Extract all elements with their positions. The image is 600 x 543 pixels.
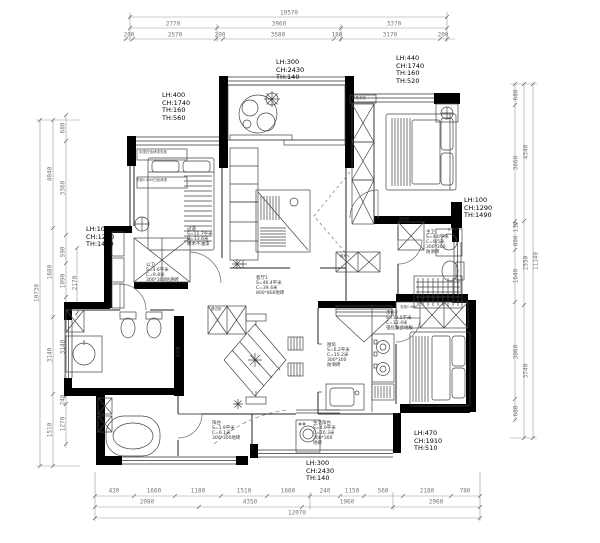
dim-left: 4040 [46, 167, 53, 181]
door-arc [178, 414, 202, 438]
cab-washer: 洗衣机 [399, 218, 410, 222]
annotation-bottom-center: LH:300 CH:2430 TH:140 [306, 460, 334, 483]
walls [64, 76, 476, 465]
dim-bottom: 240 [320, 487, 331, 494]
cab-bookcase: 书柜C:600白色烤漆 [136, 179, 167, 183]
dim-right: 4340 [522, 145, 529, 159]
toilet [147, 318, 161, 338]
dim-left: 1510 [46, 423, 53, 437]
dim-bottom-total: 12070 [288, 509, 306, 516]
guest-bathroom [66, 284, 162, 372]
bed-stripes [413, 336, 428, 402]
dim-left: 1090 [59, 274, 66, 288]
chair [288, 337, 303, 350]
annotation-left: LH:100 CH:1290 TH:1490 [86, 226, 114, 249]
dim-left: 590 [59, 247, 66, 258]
dim-top: 3170 [383, 31, 397, 38]
laundry-room [98, 398, 202, 456]
bed-stripes [392, 118, 410, 186]
floor-plan-canvas: 1057027703960337020025702003580180317020… [0, 0, 600, 543]
dim-top: 200 [438, 31, 449, 38]
annotation-top-left: LH:400 CH:1740 TH:160 TH:560 [162, 92, 190, 123]
dim-top: 200 [124, 31, 135, 38]
dim-left: 3140 [46, 348, 53, 362]
dim-bottom: 1510 [237, 487, 251, 494]
dim-bottom: 1960 [340, 498, 354, 505]
dim-bottom: 4350 [243, 498, 257, 505]
dim-right-total: 11140 [532, 252, 539, 270]
dim-top: 2570 [168, 31, 182, 38]
dim-left: 240 [59, 395, 66, 406]
annotation-right: LH:100 CH:1290 TH:1490 [464, 197, 492, 220]
room-balcony-small: 阳台 S=1.9平米 C=6.1米 300*300地砖 [212, 421, 240, 441]
master-bedroom [350, 95, 458, 224]
dim-right: 110 [512, 222, 519, 233]
dim-right: 3660 [512, 156, 519, 170]
dim-left: 3360 [59, 181, 66, 195]
annotation-top-center: LH:300 CH:2430 TH:140 [276, 59, 304, 82]
dim-bottom: 1660 [147, 487, 161, 494]
study-room [230, 135, 350, 260]
dim-left: 2170 [71, 276, 78, 290]
dim-top: 3960 [272, 20, 286, 27]
dim-bottom: 1660 [281, 487, 295, 494]
bathtub [106, 416, 160, 456]
dim-top: 180 [332, 31, 343, 38]
room-balcony: 生活阳台 S=4.9平米 C=10.3米 300*300 地砖 [313, 421, 336, 446]
room-kitchen: 厨房 S=6.2平米 C=10.2米 300*300 防滑砖 [327, 343, 350, 368]
sliding-door-swing [314, 172, 350, 258]
annotation-bottom-right: LH:470 CH:1910 TH:510 [414, 430, 442, 453]
furniture [66, 85, 470, 456]
dim-bottom: 2960 [429, 498, 443, 505]
dim-top-total: 10570 [280, 9, 298, 16]
room-hall: 过道 S=11.7平米 C=13.6米 橡木不油漆 [187, 227, 213, 247]
room-bath-guest: 公卫 S=4.6平米 C=9.8米 300*300防滑砖 [146, 263, 179, 283]
dim-left: 1680 [46, 265, 53, 279]
dim-right: 680 [512, 406, 519, 417]
cab-corner-wardrobe: 转角衣柜 [352, 97, 366, 101]
dim-bottom: 780 [460, 487, 471, 494]
table-plant [248, 353, 262, 367]
door-arc [190, 252, 221, 283]
dim-top: 3580 [271, 31, 285, 38]
cab-wardrobe-top: 到顶白色烤漆衣柜 [139, 151, 167, 155]
dim-bottom: 2180 [420, 487, 434, 494]
dim-bottom: 2080 [140, 498, 154, 505]
room-bedroom2: 次卧2 S=10.5平米 C=13.4米 强化复合地板 [386, 311, 413, 331]
room-living: 客厅1 S=46.4平米 C=39.4米 800*800地砖 [256, 276, 284, 296]
cab-wardrobe2: 衣柜C:600 [400, 306, 417, 310]
balcony-top [228, 85, 345, 140]
dim-right: 3060 [512, 345, 519, 359]
cab-sideboard: 餐边柜 [211, 308, 222, 312]
dim-left: 3140 [59, 340, 66, 354]
dining-area [208, 306, 303, 404]
dim-right: 680 [512, 90, 519, 101]
annotation-top-right: LH:440 CH:1740 TH:160 TH:520 [396, 55, 424, 86]
dim-right: 3740 [522, 364, 529, 378]
cab-shoe: 鞋柜 [340, 255, 347, 259]
dim-top: 3370 [387, 20, 401, 27]
dim-right: 2550 [522, 256, 529, 270]
dim-right: 800 [512, 236, 519, 247]
toilet [121, 318, 135, 338]
stove [372, 334, 394, 382]
dim-right: 1640 [512, 269, 519, 283]
toilet [442, 261, 458, 281]
dim-bottom: 1150 [345, 487, 359, 494]
room-bath-master: 主卫 S=4.0平米 C=9.5米 300*300 防滑砖 [426, 230, 449, 255]
dim-bottom: 1180 [191, 487, 205, 494]
plant-symbol [233, 399, 243, 409]
dim-top: 2770 [166, 20, 180, 27]
dim-bottom: 560 [378, 487, 389, 494]
dim-top: 200 [215, 31, 226, 38]
dim-bottom: 420 [109, 487, 120, 494]
dim-left: 680 [59, 123, 66, 134]
dim-left-total: 10730 [33, 284, 40, 302]
dim-left: 1270 [59, 417, 66, 431]
chair [288, 363, 303, 376]
cab-pipe: 包立管 [177, 347, 181, 358]
